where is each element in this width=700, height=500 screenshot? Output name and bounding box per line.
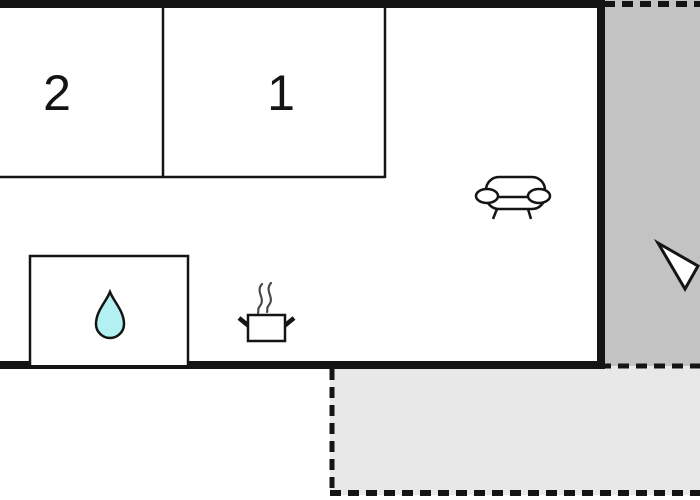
wall-top bbox=[0, 0, 605, 8]
cooking-pot-icon bbox=[239, 283, 294, 341]
terrace-light-area bbox=[330, 366, 700, 495]
sofa-right-leg bbox=[528, 209, 531, 219]
floor-plan: 2 1 bbox=[0, 0, 700, 500]
sofa-left-leg bbox=[493, 209, 497, 219]
room-1-label: 1 bbox=[267, 65, 295, 121]
wall-right bbox=[597, 0, 605, 369]
pot-body bbox=[248, 315, 285, 341]
floor-plan-canvas: 2 1 bbox=[0, 0, 700, 500]
terrace-dark-area bbox=[600, 0, 700, 366]
sofa-icon bbox=[476, 177, 550, 219]
sofa-left-armrest bbox=[476, 189, 498, 203]
sofa-right-armrest bbox=[528, 189, 550, 203]
steam-icon bbox=[258, 283, 271, 313]
room-2-label: 2 bbox=[43, 65, 71, 121]
